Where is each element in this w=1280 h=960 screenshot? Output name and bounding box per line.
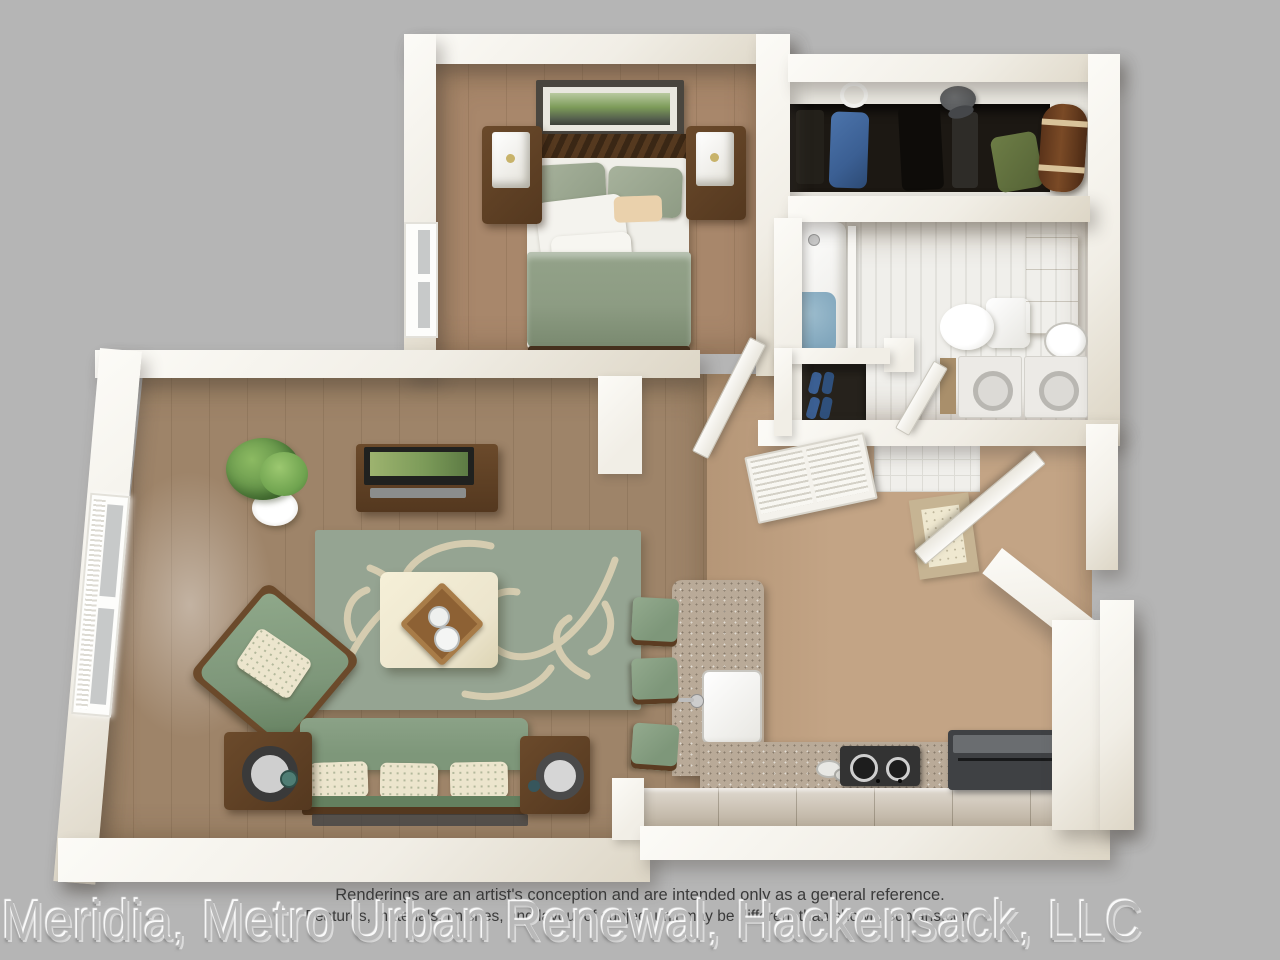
shoe — [807, 371, 822, 395]
accent-pillow — [614, 195, 663, 223]
bathroom-vanity — [1026, 234, 1078, 334]
shower-divider — [848, 226, 856, 366]
cup — [434, 626, 460, 652]
hanging-clothes-black — [898, 105, 944, 191]
side-table-left — [224, 732, 312, 810]
hall-stub-wall — [598, 376, 642, 474]
sofa-pillow — [450, 761, 509, 798]
hanging-shirt-olive — [989, 130, 1044, 193]
sofa-pillow — [380, 762, 439, 799]
kitchen-bottom-wall — [640, 826, 1110, 860]
flat-tv — [364, 447, 474, 485]
cup — [280, 770, 298, 788]
stove-knob — [898, 779, 902, 783]
table-lamp — [536, 752, 584, 800]
duffel-strap — [1042, 118, 1088, 127]
shoe — [819, 396, 833, 420]
decor-item — [528, 780, 540, 792]
base-cabinets — [640, 788, 1110, 828]
sofa — [300, 716, 528, 816]
lamp-finial — [506, 154, 515, 163]
duffel-bag — [1037, 103, 1089, 194]
duffel-strap — [1038, 164, 1084, 173]
vanity-sink — [1044, 322, 1088, 360]
cup — [428, 606, 450, 628]
entry-right-wall — [1100, 600, 1134, 830]
louver-panel — [806, 438, 869, 502]
floorplan-rendering: Renderings are an artist's conception an… — [0, 0, 1280, 960]
bar-stool — [630, 722, 679, 771]
shoe — [805, 396, 821, 420]
tv-soundbar — [370, 488, 466, 498]
tub-faucet — [808, 234, 820, 246]
bedroom-top-wall — [404, 34, 790, 64]
bar-stool — [631, 657, 679, 705]
nightstand-right — [686, 126, 746, 220]
lamp — [696, 132, 734, 186]
sofa-pillow — [309, 761, 368, 799]
hanging-jacket-black — [796, 110, 824, 184]
island-sink — [702, 670, 762, 744]
bar-stool — [631, 597, 679, 647]
shoe-closet-interior — [792, 364, 866, 422]
shoe — [821, 371, 835, 394]
watermark-text: Meridia, Metro Urban Renewal, Hackensack… — [2, 888, 1143, 954]
washer-door — [973, 371, 1013, 411]
lamp — [492, 132, 530, 188]
living-bottom-wall — [58, 838, 650, 882]
burner — [850, 754, 878, 782]
right-upper-wall — [1088, 54, 1120, 426]
white-hat — [840, 82, 868, 108]
side-table-right — [520, 736, 590, 814]
hanging-clothes-gray — [952, 112, 978, 188]
bedroom-window — [404, 222, 438, 338]
plant-foliage — [260, 452, 308, 496]
closet-top-wall — [788, 54, 1116, 82]
cooktop — [840, 746, 920, 786]
nightstand-left — [482, 126, 542, 224]
toilet-bowl — [940, 304, 994, 350]
dryer-door — [1039, 371, 1079, 411]
window-glass — [418, 230, 430, 274]
media-console — [356, 444, 498, 512]
window-glass — [418, 282, 430, 328]
shoe-closet-wall-left — [774, 348, 792, 436]
bed — [522, 134, 694, 360]
potted-plant — [226, 438, 310, 530]
stove-knob — [876, 779, 880, 783]
faucet-lever — [678, 698, 694, 702]
closet-bath-divider-wall — [788, 196, 1090, 222]
lamp-finial — [710, 153, 719, 162]
ottoman-coffee-table — [380, 572, 498, 668]
wall-art — [536, 80, 684, 138]
dryer — [1024, 356, 1088, 418]
washer — [958, 356, 1022, 418]
louver-panel — [750, 450, 813, 514]
hanging-jacket-blue — [829, 111, 870, 188]
duvet — [527, 252, 691, 348]
tv-screen — [370, 452, 468, 476]
kitchen-right-wall — [1086, 424, 1118, 570]
living-top-wall — [95, 350, 700, 378]
floor-shadow-strip — [312, 814, 528, 826]
art-landscape — [550, 93, 670, 125]
burner — [886, 757, 910, 781]
